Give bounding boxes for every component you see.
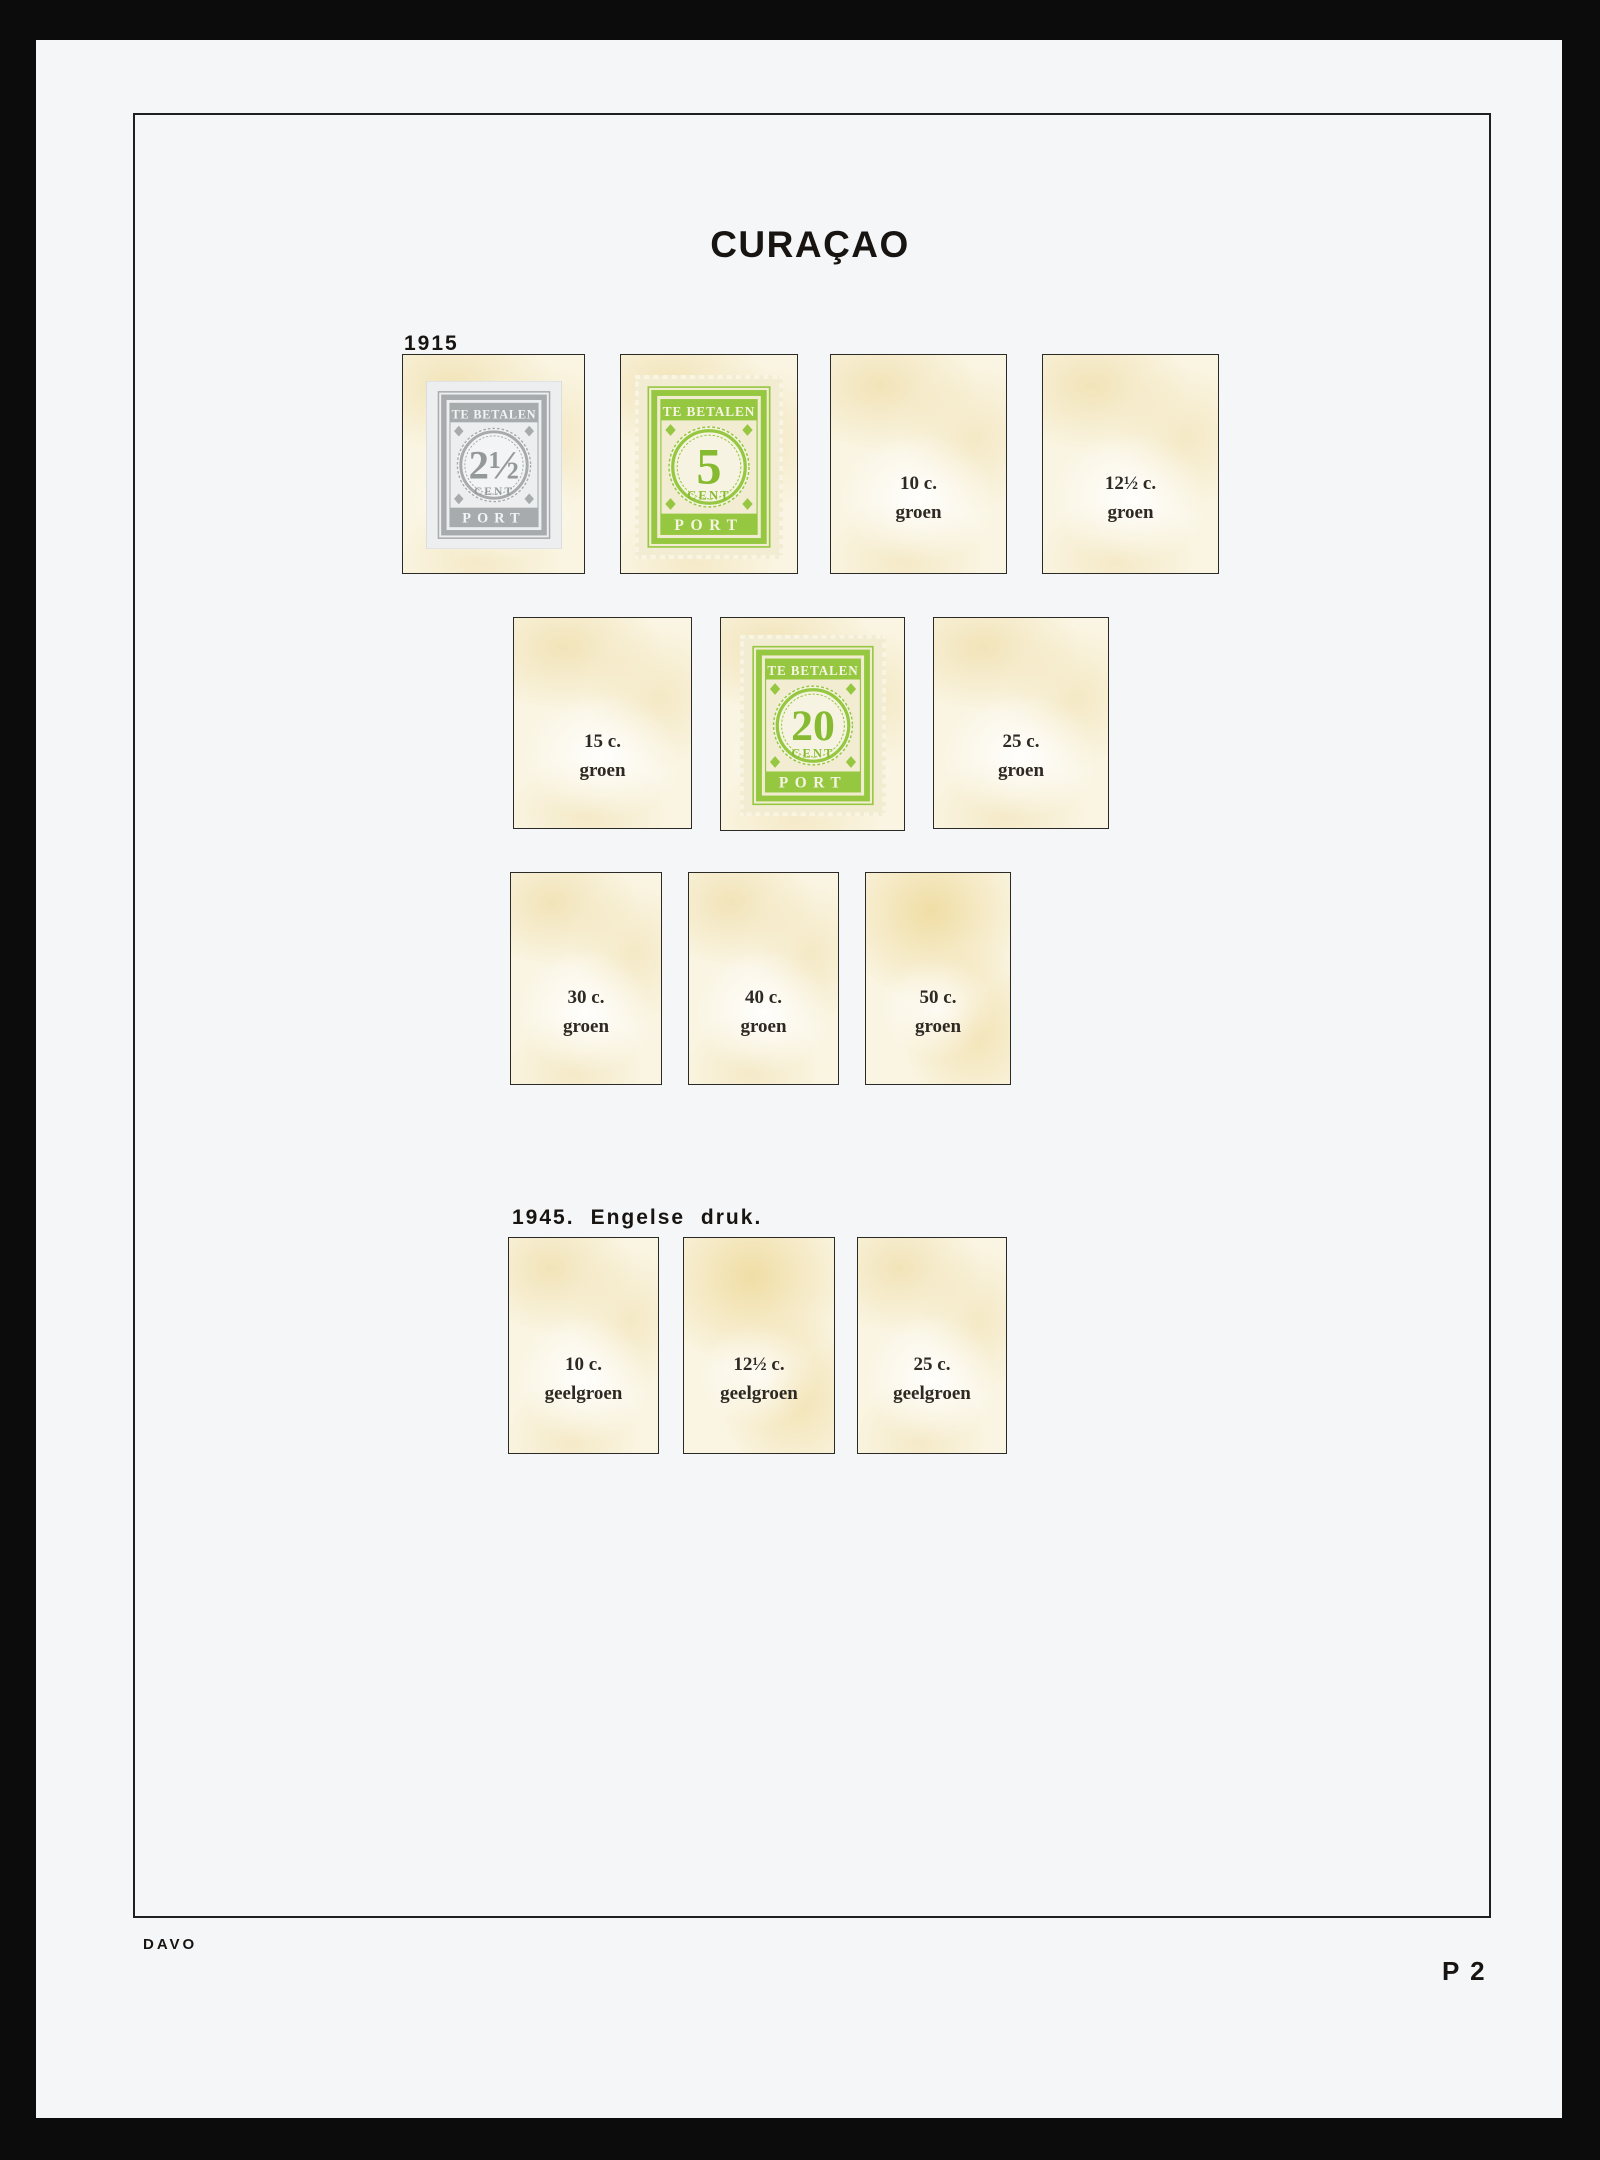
placeholder-label: 12½ c. geelgroen (684, 1354, 834, 1405)
denomination-label: 30 c. (511, 987, 661, 1009)
stamp-unit: CENT (687, 489, 731, 503)
stamp-bottom-text: PORT (462, 511, 525, 527)
section-label-1945: 1945.Engelse druk. (512, 1206, 762, 1230)
stamp-unit: CENT (791, 747, 834, 761)
denomination-label: 25 c. (934, 731, 1108, 753)
stamp-artwork: TE BETALEN 2½ CENT PORT (426, 381, 562, 549)
publisher-imprint: DAVO (143, 1936, 197, 1953)
shade-label: groen (511, 1016, 661, 1038)
denomination-label: 12½ c. (684, 1354, 834, 1376)
stamp-placeholder-12half-c-groen: 12½ c. groen (1042, 354, 1219, 574)
stamp-bottom-text: PORT (778, 775, 846, 792)
shade-label: groen (689, 1016, 838, 1038)
shade-label: geelgroen (684, 1383, 834, 1405)
stamp-top-text: TE BETALEN (663, 404, 756, 419)
placeholder-label: 50 c. groen (866, 987, 1010, 1038)
shade-label: groen (1043, 502, 1218, 524)
section-year: 1945. (512, 1206, 575, 1229)
shade-label: groen (866, 1016, 1010, 1038)
denomination-label: 10 c. (509, 1354, 658, 1376)
stamp-top-text: TE BETALEN (451, 407, 536, 421)
placeholder-label: 30 c. groen (511, 987, 661, 1038)
placeholder-label: 10 c. groen (831, 473, 1006, 524)
stamp-value: 20 (791, 702, 835, 750)
stamp-placeholder-40c-groen: 40 c. groen (688, 872, 839, 1085)
stamp-5-cent-green: TE BETALEN 5 CENT PORT (635, 375, 783, 559)
stamp-box-20-cent: TE BETALEN 20 CENT PORT (720, 617, 905, 831)
shade-label: geelgroen (858, 1383, 1006, 1405)
stamp-artwork: TE BETALEN 5 CENT PORT (635, 375, 783, 559)
placeholder-label: 25 c. geelgroen (858, 1354, 1006, 1405)
stamp-value: 5 (696, 438, 721, 494)
shade-label: geelgroen (509, 1383, 658, 1405)
stamp-value: 2½ (468, 443, 519, 488)
stamp-box-2half-cent: TE BETALEN 2½ CENT PORT (402, 354, 585, 574)
page-title: CURAÇAO (133, 224, 1487, 266)
stamp-20-cent-green: TE BETALEN 20 CENT PORT (740, 635, 886, 816)
stamp-artwork: TE BETALEN 20 CENT PORT (740, 635, 886, 816)
shade-label: groen (514, 760, 691, 782)
stamp-placeholder-10c-groen: 10 c. groen (830, 354, 1007, 574)
stamp-placeholder-25c-geelgroen: 25 c. geelgroen (857, 1237, 1007, 1454)
stamp-top-text: TE BETALEN (767, 663, 858, 678)
stamp-placeholder-10c-geelgroen: 10 c. geelgroen (508, 1237, 659, 1454)
denomination-label: 40 c. (689, 987, 838, 1009)
stamp-placeholder-50c-groen: 50 c. groen (865, 872, 1011, 1085)
shade-label: groen (831, 502, 1006, 524)
shade-label: groen (934, 760, 1108, 782)
denomination-label: 25 c. (858, 1354, 1006, 1376)
placeholder-label: 25 c. groen (934, 731, 1108, 782)
placeholder-label: 10 c. geelgroen (509, 1354, 658, 1405)
stamp-placeholder-25c-groen: 25 c. groen (933, 617, 1109, 829)
denomination-label: 10 c. (831, 473, 1006, 495)
album-page: CURAÇAO 1915 TE BETALEN 2½ (36, 40, 1562, 2118)
section-label-1915: 1915 (404, 332, 459, 356)
stamp-placeholder-15c-groen: 15 c. groen (513, 617, 692, 829)
placeholder-label: 12½ c. groen (1043, 473, 1218, 524)
placeholder-label: 15 c. groen (514, 731, 691, 782)
placeholder-label: 40 c. groen (689, 987, 838, 1038)
stamp-bottom-text: PORT (674, 517, 743, 534)
stamp-unit: CENT (473, 486, 513, 498)
denomination-label: 50 c. (866, 987, 1010, 1009)
stamp-placeholder-30c-groen: 30 c. groen (510, 872, 662, 1085)
stamp-placeholder-12half-c-geelgroen: 12½ c. geelgroen (683, 1237, 835, 1454)
denomination-label: 12½ c. (1043, 473, 1218, 495)
denomination-label: 15 c. (514, 731, 691, 753)
page-number: P 2 (1442, 1956, 1487, 1987)
stamp-2half-cent-grey: TE BETALEN 2½ CENT PORT (426, 381, 562, 549)
stamp-box-5-cent: TE BETALEN 5 CENT PORT (620, 354, 798, 574)
section-description: Engelse druk. (591, 1206, 763, 1229)
